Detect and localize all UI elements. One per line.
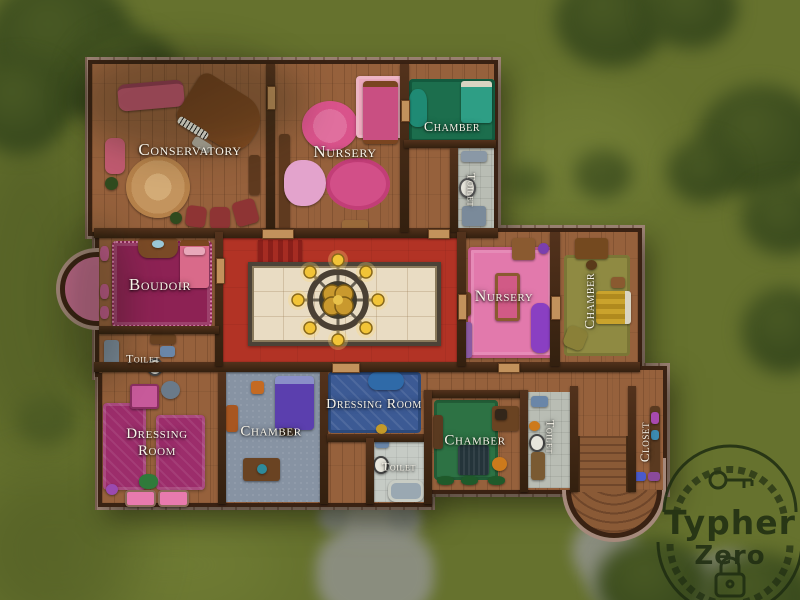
- room-label-toilet-bottom-mid: Toilet: [382, 460, 416, 475]
- couch: [531, 303, 550, 353]
- interior-wall: [450, 148, 458, 232]
- interior-wall: [424, 390, 528, 398]
- tree-shadow: [60, 220, 130, 390]
- room-label-dressing-mid: Dressing Room: [326, 397, 422, 413]
- shelf: [531, 396, 548, 407]
- room-label-conservatory: Conservatory: [138, 140, 241, 160]
- cabinet: [531, 452, 545, 480]
- interior-wall: [424, 390, 432, 504]
- nightstand: [611, 277, 625, 288]
- tree-shadow: [75, 45, 305, 155]
- cabinet: [462, 206, 486, 226]
- flower-bed: [158, 490, 189, 507]
- bush: [18, 396, 74, 444]
- bed: [458, 445, 489, 475]
- room-label-toilet-left: Toilet: [126, 352, 160, 367]
- interior-wall: [628, 386, 636, 492]
- door: [216, 258, 225, 284]
- room-label-toilet-top-right: Toilet: [464, 173, 479, 207]
- door: [401, 100, 410, 122]
- oval-rug: [326, 158, 390, 210]
- interior-wall: [215, 232, 223, 366]
- door: [458, 294, 467, 320]
- door: [551, 296, 561, 320]
- bathtub: [388, 480, 424, 502]
- interior-wall: [520, 390, 528, 492]
- garden-path: [316, 528, 434, 600]
- shelf: [150, 334, 176, 344]
- watermark-line2: Zero: [694, 541, 765, 571]
- play-couch: [284, 160, 326, 206]
- cushion: [251, 381, 264, 394]
- bush: [575, 150, 631, 198]
- room-label-chamber-bottom-left: Chamber: [240, 424, 301, 441]
- grass-light-patch: [495, 90, 665, 220]
- shelf: [461, 151, 487, 162]
- bed: [461, 81, 492, 123]
- chaise: [368, 372, 404, 390]
- interior-wall: [366, 438, 374, 504]
- bush: [506, 164, 546, 198]
- room-label-nursery-top: Nursery: [313, 142, 376, 162]
- desk: [575, 238, 608, 259]
- bench: [226, 405, 238, 432]
- plant: [437, 476, 454, 485]
- desk-chair: [495, 409, 507, 420]
- room-label-nursery-right: Nursery: [475, 288, 534, 306]
- room-label-chamber-top-right: Chamber: [424, 120, 480, 136]
- watermark-logo: Typher Zero: [650, 448, 800, 600]
- door: [332, 363, 360, 373]
- interior-wall: [570, 386, 578, 492]
- plant: [170, 212, 182, 224]
- vanity-mirror: [152, 240, 164, 248]
- small-rug: [161, 381, 180, 399]
- interior-wall: [404, 140, 496, 148]
- room-label-toilet-bottom-right: Toilet: [543, 420, 558, 454]
- shelf: [249, 155, 260, 195]
- plant: [488, 476, 505, 485]
- changing-table: [512, 238, 535, 260]
- bed: [363, 81, 398, 144]
- pouf: [538, 243, 549, 254]
- armchair: [185, 205, 208, 229]
- door: [498, 363, 520, 373]
- pillow: [184, 247, 205, 255]
- interior-wall: [400, 64, 409, 232]
- door: [428, 229, 450, 239]
- room-label-chamber-bottom-green: Chamber: [444, 433, 505, 450]
- room-label-chamber-right: Chamber: [583, 273, 599, 329]
- basket: [529, 421, 540, 431]
- door: [262, 229, 294, 239]
- bed: [596, 291, 631, 324]
- pouf: [492, 457, 507, 471]
- tree: [668, 140, 738, 202]
- round-rug: [126, 156, 190, 218]
- chandelier: [290, 252, 386, 348]
- staircase: [578, 436, 628, 492]
- sink: [160, 346, 175, 357]
- armchair: [210, 207, 230, 229]
- plant: [461, 476, 478, 485]
- plant: [139, 474, 158, 489]
- wardrobe: [130, 384, 159, 409]
- desk-chair: [586, 260, 597, 270]
- interior-wall: [327, 434, 424, 442]
- bed: [275, 376, 314, 430]
- gold-basket: [376, 424, 387, 434]
- flower-pot: [106, 484, 118, 495]
- desk-lamp: [257, 464, 267, 474]
- watermark-line1: Typher: [664, 503, 796, 542]
- plant: [105, 177, 118, 190]
- battle-map: Conservatory Nursery Chamber Toilet Boud…: [0, 0, 800, 600]
- tree: [742, 288, 800, 373]
- room-label-boudoir: Boudoir: [129, 275, 191, 295]
- interior-wall: [218, 372, 226, 504]
- flower-bed: [125, 490, 156, 507]
- room-label-dressing-left: Dressing Room: [109, 426, 205, 460]
- shelf: [433, 415, 443, 449]
